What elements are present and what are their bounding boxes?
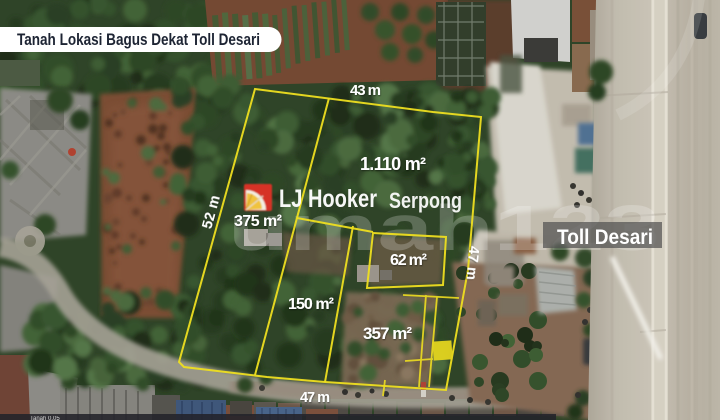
svg-text:Toll Desari: Toll Desari <box>557 226 653 249</box>
svg-text:Tanah Lokasi Bagus Dekat Toll: Tanah Lokasi Bagus Dekat Toll Desari <box>17 31 260 49</box>
svg-text:LJ Hooker: LJ Hooker <box>279 185 377 213</box>
svg-text:Serpong: Serpong <box>389 188 462 213</box>
svg-text:1.110 m²: 1.110 m² <box>360 154 426 174</box>
svg-text:47 m: 47 m <box>300 390 330 406</box>
svg-text:Tanah 0.05: Tanah 0.05 <box>30 416 60 420</box>
svg-text:357 m²: 357 m² <box>363 324 412 343</box>
svg-text:150 m²: 150 m² <box>288 296 334 313</box>
svg-text:43 m: 43 m <box>350 82 381 99</box>
svg-text:47 m: 47 m <box>463 245 482 280</box>
svg-text:375 m²: 375 m² <box>234 213 282 230</box>
svg-text:62 m²: 62 m² <box>390 252 427 269</box>
